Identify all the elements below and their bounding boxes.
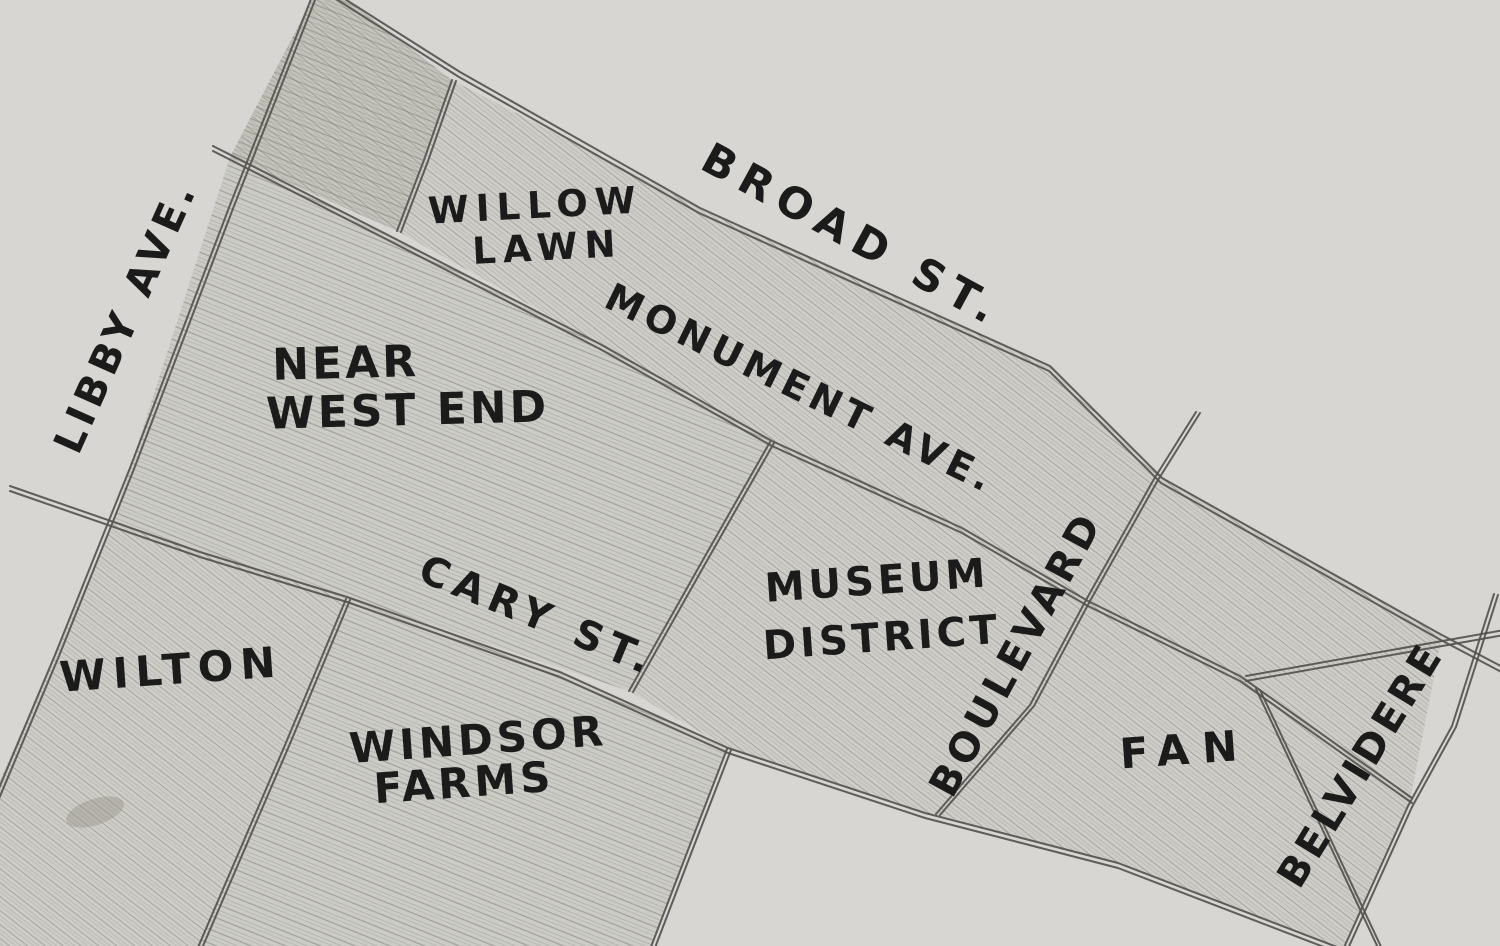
map-canvas: LIBBY AVE. BROAD ST. MONUMENT AVE. CARY … bbox=[0, 0, 1500, 946]
svg-text:LAWN: LAWN bbox=[471, 222, 623, 273]
sketch-map: LIBBY AVE. BROAD ST. MONUMENT AVE. CARY … bbox=[0, 0, 1500, 946]
region-label-fan: FAN bbox=[1118, 721, 1252, 779]
svg-text:WEST END: WEST END bbox=[265, 381, 549, 439]
svg-text:NEAR: NEAR bbox=[272, 336, 420, 391]
svg-text:FAN: FAN bbox=[1118, 721, 1252, 779]
